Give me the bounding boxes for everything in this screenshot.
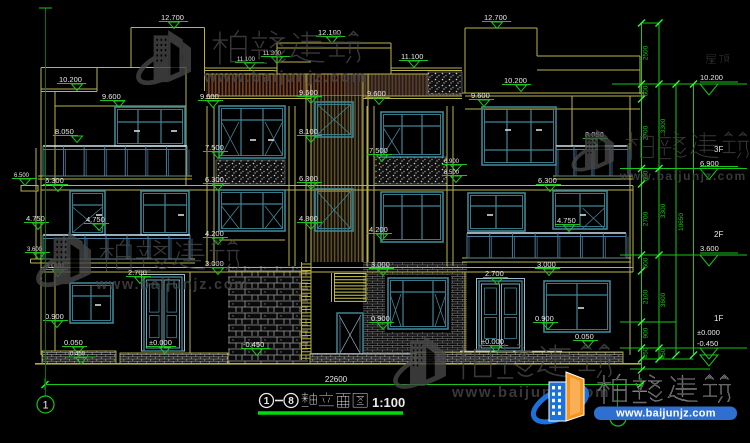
svg-text:12.700: 12.700 [161, 13, 184, 22]
svg-text:4.800: 4.800 [299, 214, 318, 223]
svg-text:4.750: 4.750 [26, 214, 45, 223]
svg-text:4.750: 4.750 [86, 215, 105, 224]
svg-text:0.050: 0.050 [64, 338, 83, 347]
svg-text:1:100: 1:100 [372, 395, 405, 410]
svg-text:11.100: 11.100 [401, 52, 423, 61]
svg-text:900: 900 [643, 327, 650, 338]
svg-text:6.300: 6.300 [45, 176, 64, 185]
svg-text:10.200: 10.200 [59, 75, 82, 84]
svg-text:www.baijunjz.com: www.baijunjz.com [619, 169, 747, 183]
svg-text:3.000: 3.000 [371, 260, 390, 269]
svg-text:22600: 22600 [325, 375, 348, 384]
svg-text:10.200: 10.200 [700, 73, 723, 82]
svg-text:2.700: 2.700 [485, 269, 504, 278]
svg-text:www.baijunjz.com: www.baijunjz.com [615, 408, 716, 420]
svg-text:600: 600 [643, 257, 650, 268]
svg-text:12.700: 12.700 [484, 13, 507, 22]
svg-text:1: 1 [264, 396, 270, 407]
svg-text:±0.000: ±0.000 [481, 337, 504, 346]
svg-text:4.200: 4.200 [205, 229, 224, 238]
svg-text:3300: 3300 [660, 118, 667, 133]
svg-text:9.600: 9.600 [471, 91, 490, 100]
svg-text:600: 600 [643, 85, 650, 96]
svg-text:www.baijunjz.com: www.baijunjz.com [95, 277, 249, 293]
svg-text:3.600: 3.600 [700, 244, 719, 253]
svg-text:3.000: 3.000 [537, 260, 556, 269]
svg-text:10650: 10650 [678, 213, 685, 231]
svg-text:6.300: 6.300 [205, 175, 224, 184]
svg-text:2500: 2500 [643, 45, 650, 60]
svg-text:6.300: 6.300 [299, 174, 318, 183]
svg-text:3600: 3600 [660, 292, 667, 307]
svg-text:9.600: 9.600 [102, 92, 121, 101]
svg-text:0.900: 0.900 [371, 314, 390, 323]
svg-text:7.500: 7.500 [205, 143, 224, 152]
svg-text:3300: 3300 [660, 203, 667, 218]
svg-text:±0.000: ±0.000 [697, 328, 720, 337]
svg-text:2F: 2F [714, 230, 723, 239]
svg-text:9.600: 9.600 [200, 92, 219, 101]
svg-text:±0.000: ±0.000 [149, 338, 172, 347]
svg-text:0.900: 0.900 [45, 312, 64, 321]
svg-text:1F: 1F [714, 314, 723, 323]
svg-text:7.500: 7.500 [369, 146, 388, 155]
svg-text:6.300: 6.300 [538, 176, 557, 185]
svg-text:-0.450: -0.450 [697, 339, 718, 348]
svg-text:2700: 2700 [643, 211, 650, 226]
svg-text:8: 8 [288, 396, 294, 407]
svg-text:2100: 2100 [643, 289, 650, 304]
svg-text:10.200: 10.200 [504, 76, 527, 85]
svg-text:8.050: 8.050 [55, 127, 74, 136]
svg-text:3F: 3F [714, 145, 723, 154]
svg-text:-0.450: -0.450 [243, 340, 264, 349]
svg-text:450: 450 [643, 347, 650, 358]
svg-text:www.baijunjz.com: www.baijunjz.com [203, 69, 368, 86]
svg-text:4.200: 4.200 [369, 225, 388, 234]
svg-text:8.100: 8.100 [299, 127, 318, 136]
svg-text:9.600: 9.600 [367, 89, 386, 98]
svg-text:4.750: 4.750 [557, 216, 576, 225]
svg-text:9.600: 9.600 [299, 88, 318, 97]
svg-text:1: 1 [42, 400, 48, 412]
svg-text:0.900: 0.900 [535, 314, 554, 323]
svg-text:0.050: 0.050 [575, 332, 594, 341]
svg-text:450: 450 [660, 348, 667, 359]
